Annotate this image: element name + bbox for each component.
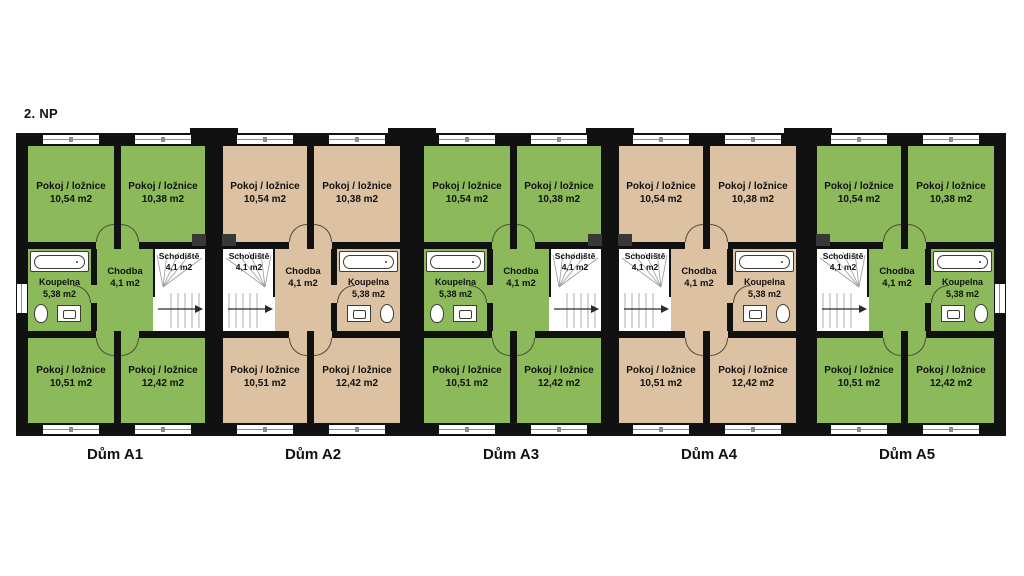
bedroom-bottom-right-label-name: Pokoj / ložnice	[817, 364, 901, 377]
bedroom-top-right-label-area: 10,38 m2	[517, 193, 601, 206]
flue-block	[618, 234, 632, 246]
bedroom-top-right-label: Pokoj / ložnice10,38 m2	[517, 180, 601, 206]
window-tick	[465, 137, 469, 142]
window	[831, 425, 887, 434]
sink-icon	[453, 305, 477, 322]
stairs-label-area: 4,1 m2	[224, 262, 274, 273]
window-tick	[465, 427, 469, 432]
window	[329, 425, 385, 434]
window	[531, 135, 587, 144]
window-tick	[751, 427, 755, 432]
window-tick	[69, 137, 73, 142]
bedroom-top-left-label-area: 10,54 m2	[424, 193, 510, 206]
bedroom-top-left-label-area: 10,38 m2	[314, 193, 400, 206]
window	[831, 135, 887, 144]
bathtub-icon	[30, 251, 89, 272]
bedroom-bottom-left-label-name: Pokoj / ložnice	[314, 364, 400, 377]
hall-label: Chodba4,1 m2	[671, 266, 727, 291]
bathtub-icon	[933, 251, 992, 272]
bedroom-top-right-label-area: 10,54 m2	[817, 193, 901, 206]
bathtub-basin	[739, 255, 790, 269]
bedroom-bottom-left-label-area: 12,42 m2	[710, 377, 796, 390]
door-gap	[710, 331, 728, 338]
window-side	[17, 284, 27, 313]
window	[633, 425, 689, 434]
stairs-label-name: Schodiště	[620, 251, 670, 262]
bathtub-icon	[735, 251, 794, 272]
toilet-icon	[430, 304, 444, 323]
house-d-m-a2: Pokoj / ložnice10,38 m2Pokoj / ložnice10…	[214, 133, 412, 436]
hall-label-name: Chodba	[493, 266, 549, 278]
bathtub-icon	[426, 251, 485, 272]
stairs-label-name: Schodiště	[224, 251, 274, 262]
window	[237, 135, 293, 144]
bedroom-bottom-left-label-name: Pokoj / ložnice	[28, 364, 114, 377]
sink-basin	[459, 310, 472, 319]
bathroom-label-area: 5,38 m2	[733, 289, 796, 301]
bedroom-top-left-label-name: Pokoj / ložnice	[314, 180, 400, 193]
bedroom-top-left-label: Pokoj / ložnice10,38 m2	[908, 180, 994, 206]
chimney-block	[190, 128, 238, 135]
window	[135, 135, 191, 144]
window-tick	[263, 137, 267, 142]
house-label-1: Dům A1	[16, 446, 214, 463]
door-gap	[908, 242, 926, 249]
bathroom-label-name: Koupelna	[733, 277, 796, 289]
hall-label: Chodba4,1 m2	[275, 266, 331, 291]
stairs-label-area: 4,1 m2	[620, 262, 670, 273]
bedroom-bottom-right-label-area: 12,42 m2	[517, 377, 601, 390]
floor-plan-screen: 2. NP Pokoj / ložnice10,54 m2Pokoj / lož…	[0, 0, 1024, 576]
bedroom-top-left-label-area: 10,38 m2	[710, 193, 796, 206]
bathroom-label-area: 5,38 m2	[931, 289, 994, 301]
window-tick	[355, 427, 359, 432]
bedroom-bottom-right-label-area: 12,42 m2	[121, 377, 205, 390]
bedroom-top-right-label: Pokoj / ložnice10,54 m2	[817, 180, 901, 206]
bedroom-top-right-label-area: 10,54 m2	[223, 193, 307, 206]
window-tick	[949, 137, 953, 142]
bedroom-bottom-left-label-name: Pokoj / ložnice	[710, 364, 796, 377]
bedroom-top-left-label: Pokoj / ložnice10,38 m2	[710, 180, 796, 206]
bedroom-bottom-left-label-name: Pokoj / ložnice	[908, 364, 994, 377]
chimney-block	[784, 128, 832, 135]
floor-title: 2. NP	[24, 106, 58, 121]
stairs-label-name: Schodiště	[818, 251, 868, 262]
bedroom-top-left-label-name: Pokoj / ložnice	[710, 180, 796, 193]
door-gap	[314, 242, 332, 249]
window	[725, 425, 781, 434]
door-gap	[492, 242, 510, 249]
bathtub-drain-dot	[76, 261, 78, 263]
bedroom-bottom-left-label: Pokoj / ložnice10,51 m2	[28, 364, 114, 390]
window-tick	[69, 427, 73, 432]
bedroom-top-left-label: Pokoj / ložnice10,38 m2	[314, 180, 400, 206]
bedroom-bottom-right-label: Pokoj / ložnice10,51 m2	[619, 364, 703, 390]
bedroom-bottom-left-label: Pokoj / ložnice12,42 m2	[314, 364, 400, 390]
bathroom-label-area: 5,38 m2	[28, 289, 91, 301]
bathtub-basin	[937, 255, 988, 269]
bedroom-bottom-right-label: Pokoj / ložnice12,42 m2	[121, 364, 205, 390]
window-tick	[557, 137, 561, 142]
stairs-label-area: 4,1 m2	[154, 262, 204, 273]
hall-label: Chodba4,1 m2	[493, 266, 549, 291]
bedroom-top-right-label-name: Pokoj / ložnice	[817, 180, 901, 193]
sink-icon	[347, 305, 371, 322]
stairs-label: Schodiště4,1 m2	[818, 251, 868, 273]
toilet-icon	[776, 304, 790, 323]
house-d-m-a5: Pokoj / ložnice10,38 m2Pokoj / ložnice10…	[808, 133, 1006, 436]
window-side	[995, 284, 1005, 313]
bedroom-top-left-label-name: Pokoj / ložnice	[424, 180, 510, 193]
bedroom-top-right-label: Pokoj / ložnice10,54 m2	[223, 180, 307, 206]
bedroom-bottom-right-label-name: Pokoj / ložnice	[517, 364, 601, 377]
bathroom-label-area: 5,38 m2	[337, 289, 400, 301]
window	[439, 135, 495, 144]
stairs-label-area: 4,1 m2	[550, 262, 600, 273]
house-label-3: Dům A3	[412, 446, 610, 463]
flue-block	[588, 234, 602, 246]
stairs-label-name: Schodiště	[154, 251, 204, 262]
bedroom-bottom-left-label: Pokoj / ložnice12,42 m2	[908, 364, 994, 390]
window-sill-vertical	[999, 284, 1000, 313]
window	[43, 425, 99, 434]
door-gap	[96, 331, 114, 338]
sink-basin	[353, 310, 366, 319]
bedroom-top-right-label-area: 10,54 m2	[619, 193, 703, 206]
bedroom-bottom-right-label: Pokoj / ložnice10,51 m2	[223, 364, 307, 390]
bedroom-bottom-left-label-area: 12,42 m2	[314, 377, 400, 390]
stairs-label: Schodiště4,1 m2	[620, 251, 670, 273]
hall-label-area: 4,1 m2	[493, 278, 549, 290]
window-tick	[161, 137, 165, 142]
flue-block	[192, 234, 206, 246]
window	[725, 135, 781, 144]
window-tick	[659, 137, 663, 142]
bedroom-bottom-right-label-area: 10,51 m2	[223, 377, 307, 390]
bathroom-label: Koupelna5,38 m2	[733, 277, 796, 300]
door-gap	[883, 331, 901, 338]
flue-block	[222, 234, 236, 246]
chimney-block	[388, 128, 436, 135]
bedroom-top-left-label-area: 10,38 m2	[908, 193, 994, 206]
bathroom-label-name: Koupelna	[424, 277, 487, 289]
hall-label-name: Chodba	[869, 266, 925, 278]
bathroom-label-name: Koupelna	[337, 277, 400, 289]
bathroom-label: Koupelna5,38 m2	[424, 277, 487, 300]
bedroom-bottom-right-label-name: Pokoj / ložnice	[619, 364, 703, 377]
door-gap	[517, 242, 535, 249]
bedroom-top-right-label: Pokoj / ložnice10,38 m2	[121, 180, 205, 206]
window-tick	[751, 137, 755, 142]
toilet-icon	[34, 304, 48, 323]
house-d-m-a1: Pokoj / ložnice10,54 m2Pokoj / ložnice10…	[16, 133, 214, 436]
sink-icon	[941, 305, 965, 322]
bedroom-top-right-label: Pokoj / ložnice10,54 m2	[619, 180, 703, 206]
sink-basin	[749, 310, 762, 319]
bathtub-basin	[430, 255, 481, 269]
door-gap	[96, 242, 114, 249]
bedroom-top-left-label: Pokoj / ložnice10,54 m2	[424, 180, 510, 206]
sink-icon	[57, 305, 81, 322]
stairs-label: Schodiště4,1 m2	[550, 251, 600, 273]
bedroom-bottom-left-label: Pokoj / ložnice12,42 m2	[710, 364, 796, 390]
window-tick	[355, 137, 359, 142]
door-gap	[908, 331, 926, 338]
house-label-2: Dům A2	[214, 446, 412, 463]
bedroom-bottom-right-label-area: 10,51 m2	[619, 377, 703, 390]
bedroom-bottom-left-label-area: 10,51 m2	[28, 377, 114, 390]
door-gap	[883, 242, 901, 249]
bathtub-icon	[339, 251, 398, 272]
window-tick	[857, 427, 861, 432]
door-gap	[121, 331, 139, 338]
bedroom-bottom-left-label-name: Pokoj / ložnice	[424, 364, 510, 377]
stairs-label-name: Schodiště	[550, 251, 600, 262]
bedroom-top-right-label-name: Pokoj / ložnice	[517, 180, 601, 193]
door-gap	[710, 242, 728, 249]
door-gap	[289, 331, 307, 338]
window-tick	[557, 427, 561, 432]
bedroom-top-right-label-name: Pokoj / ložnice	[619, 180, 703, 193]
bedroom-top-left-label-name: Pokoj / ložnice	[908, 180, 994, 193]
bathroom-label-name: Koupelna	[931, 277, 994, 289]
bathtub-basin	[34, 255, 85, 269]
window	[43, 135, 99, 144]
sink-icon	[743, 305, 767, 322]
stairs-label: Schodiště4,1 m2	[154, 251, 204, 273]
stairs-label: Schodiště4,1 m2	[224, 251, 274, 273]
hall-label-name: Chodba	[275, 266, 331, 278]
window	[531, 425, 587, 434]
window	[439, 425, 495, 434]
hall-label: Chodba4,1 m2	[869, 266, 925, 291]
sink-basin	[947, 310, 960, 319]
window-tick	[857, 137, 861, 142]
chimney-block	[586, 128, 634, 135]
hall-label-area: 4,1 m2	[97, 278, 153, 290]
bathtub-drain-dot	[472, 261, 474, 263]
hall-label: Chodba4,1 m2	[97, 266, 153, 291]
bathroom-label: Koupelna5,38 m2	[337, 277, 400, 300]
stairs-label-area: 4,1 m2	[818, 262, 868, 273]
house-d-m-a4: Pokoj / ložnice10,38 m2Pokoj / ložnice10…	[610, 133, 808, 436]
bathroom-label-area: 5,38 m2	[424, 289, 487, 301]
house-label-4: Dům A4	[610, 446, 808, 463]
bedroom-top-right-label-name: Pokoj / ložnice	[121, 180, 205, 193]
door-gap	[289, 242, 307, 249]
hall-label-area: 4,1 m2	[869, 278, 925, 290]
door-gap	[685, 331, 703, 338]
door-gap	[314, 331, 332, 338]
bedroom-bottom-left-label: Pokoj / ložnice10,51 m2	[424, 364, 510, 390]
bathroom-label-name: Koupelna	[28, 277, 91, 289]
sink-basin	[63, 310, 76, 319]
bedroom-top-right-label-name: Pokoj / ložnice	[223, 180, 307, 193]
bathtub-basin	[343, 255, 394, 269]
hall-label-name: Chodba	[97, 266, 153, 278]
door-gap	[121, 242, 139, 249]
flue-block	[816, 234, 830, 246]
bathroom-label: Koupelna5,38 m2	[28, 277, 91, 300]
house-label-5: Dům A5	[808, 446, 1006, 463]
window	[237, 425, 293, 434]
bedroom-bottom-right-label: Pokoj / ložnice10,51 m2	[817, 364, 901, 390]
bathtub-drain-dot	[385, 261, 387, 263]
window-tick	[659, 427, 663, 432]
bedroom-bottom-left-label-area: 12,42 m2	[908, 377, 994, 390]
bedroom-bottom-right-label-name: Pokoj / ložnice	[223, 364, 307, 377]
bedroom-top-left-label-name: Pokoj / ložnice	[28, 180, 114, 193]
bedroom-top-left-label: Pokoj / ložnice10,54 m2	[28, 180, 114, 206]
hall-label-name: Chodba	[671, 266, 727, 278]
window-tick	[161, 427, 165, 432]
house-d-m-a3: Pokoj / ložnice10,54 m2Pokoj / ložnice10…	[412, 133, 610, 436]
bedroom-bottom-right-label-name: Pokoj / ložnice	[121, 364, 205, 377]
bathtub-drain-dot	[781, 261, 783, 263]
bedroom-top-right-label-area: 10,38 m2	[121, 193, 205, 206]
bedroom-bottom-right-label-area: 10,51 m2	[817, 377, 901, 390]
bedroom-top-left-label-area: 10,54 m2	[28, 193, 114, 206]
bedroom-bottom-left-label-area: 10,51 m2	[424, 377, 510, 390]
bedroom-bottom-right-label: Pokoj / ložnice12,42 m2	[517, 364, 601, 390]
toilet-icon	[974, 304, 988, 323]
window-sill-vertical	[21, 284, 22, 313]
floor-plan: Pokoj / ložnice10,54 m2Pokoj / ložnice10…	[16, 133, 1006, 436]
toilet-icon	[380, 304, 394, 323]
hall-label-area: 4,1 m2	[671, 278, 727, 290]
window-tick	[263, 427, 267, 432]
door-gap	[492, 331, 510, 338]
door-gap	[685, 242, 703, 249]
door-gap	[517, 331, 535, 338]
window-tick	[949, 427, 953, 432]
window	[135, 425, 191, 434]
hall-label-area: 4,1 m2	[275, 278, 331, 290]
bathroom-label: Koupelna5,38 m2	[931, 277, 994, 300]
window	[923, 135, 979, 144]
window	[329, 135, 385, 144]
window	[633, 135, 689, 144]
bathtub-drain-dot	[979, 261, 981, 263]
window	[923, 425, 979, 434]
